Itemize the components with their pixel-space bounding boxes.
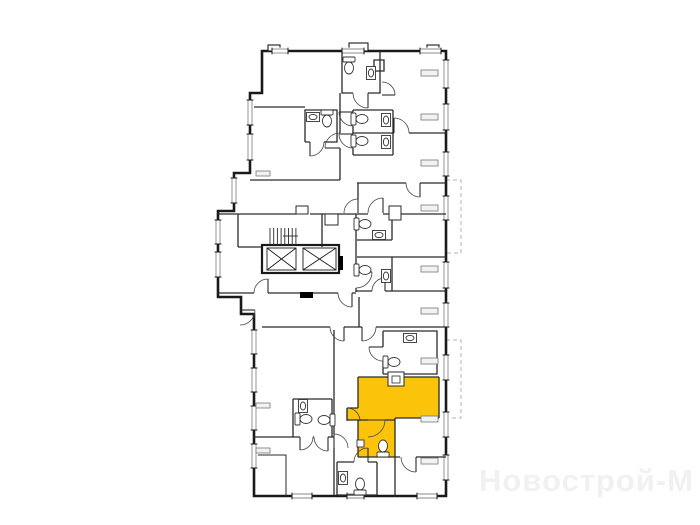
- window-icon: [443, 262, 450, 288]
- window-icon: [342, 48, 364, 55]
- toilet-icon: [318, 414, 335, 426]
- door-leaf-mark: [339, 256, 343, 270]
- floor-plan-svg: [0, 0, 700, 525]
- radiator-icon: [256, 403, 270, 408]
- window-icon: [443, 355, 450, 380]
- door-icon: [382, 82, 395, 95]
- radiator-icon: [421, 416, 438, 422]
- window-icon: [443, 104, 450, 130]
- entrance-door-mark: [300, 292, 313, 298]
- door-icon: [401, 457, 416, 472]
- toilet-icon: [354, 264, 371, 276]
- sink-icon: [339, 472, 348, 485]
- sink-icon: [382, 270, 391, 283]
- window-icon: [251, 330, 258, 354]
- sink-icon: [299, 400, 308, 413]
- toilet-icon: [351, 113, 368, 125]
- door-icon: [353, 93, 368, 108]
- window-icon: [215, 252, 222, 277]
- stairs-icon: [270, 228, 298, 245]
- window-icon: [443, 412, 450, 437]
- radiator-icon: [421, 114, 438, 120]
- toilet-icon: [351, 135, 368, 147]
- door-icon: [406, 183, 420, 197]
- window-icon: [420, 48, 441, 55]
- radiator-icon: [421, 70, 438, 76]
- toilet-icon: [343, 57, 355, 74]
- radiator-icon: [421, 308, 438, 314]
- door-icon: [314, 437, 328, 451]
- door-icon: [368, 198, 383, 213]
- window-icon: [215, 220, 222, 244]
- sink-icon: [307, 113, 320, 122]
- watermark: Новострой-М: [479, 463, 694, 499]
- door-icon: [254, 279, 268, 293]
- window-icon: [417, 493, 437, 500]
- window-icon: [443, 152, 450, 176]
- radiator-icon: [421, 266, 438, 272]
- window-icon: [443, 196, 450, 220]
- radiator-icon: [421, 160, 438, 166]
- elevator-core: [262, 228, 343, 298]
- toilet-icon: [383, 356, 400, 368]
- door-icon: [394, 118, 409, 133]
- window-icon: [443, 455, 450, 480]
- toilet-icon: [321, 110, 333, 127]
- sink-icon: [367, 67, 376, 80]
- door-icon: [344, 199, 358, 213]
- sink-icon: [373, 231, 386, 240]
- window-icon: [272, 48, 288, 55]
- bathroom-fixtures: [295, 57, 417, 495]
- window-icon: [231, 178, 238, 203]
- radiator-icon: [256, 171, 270, 176]
- elevator-shaft-icon: [267, 248, 336, 270]
- window-icon: [251, 368, 258, 392]
- toilet-icon: [295, 413, 312, 425]
- toilet-icon: [354, 478, 366, 495]
- window-icon: [443, 60, 450, 88]
- door-icon: [300, 437, 313, 450]
- door-icon: [369, 347, 383, 361]
- toilet-icon: [354, 218, 371, 230]
- door-icon: [310, 142, 324, 156]
- floor-plan-page: Новострой-М: [0, 0, 700, 525]
- door-icon: [362, 327, 376, 341]
- window-icon: [443, 303, 450, 327]
- radiator-icon: [256, 448, 270, 453]
- window-icon: [251, 406, 258, 430]
- radiator-icon: [421, 205, 438, 211]
- door-icon: [338, 293, 352, 307]
- door-icon: [334, 434, 348, 448]
- sink-icon: [404, 334, 417, 343]
- door-icon: [330, 327, 344, 341]
- window-icon: [247, 100, 254, 125]
- sink-icon: [382, 114, 391, 127]
- door-icon: [325, 133, 340, 148]
- radiator-icon: [421, 358, 438, 364]
- sink-icon: [382, 136, 391, 149]
- shower-drain-icon: [357, 440, 364, 447]
- radiator-icon: [421, 458, 438, 464]
- window-icon: [292, 493, 312, 500]
- window-icon: [247, 134, 254, 160]
